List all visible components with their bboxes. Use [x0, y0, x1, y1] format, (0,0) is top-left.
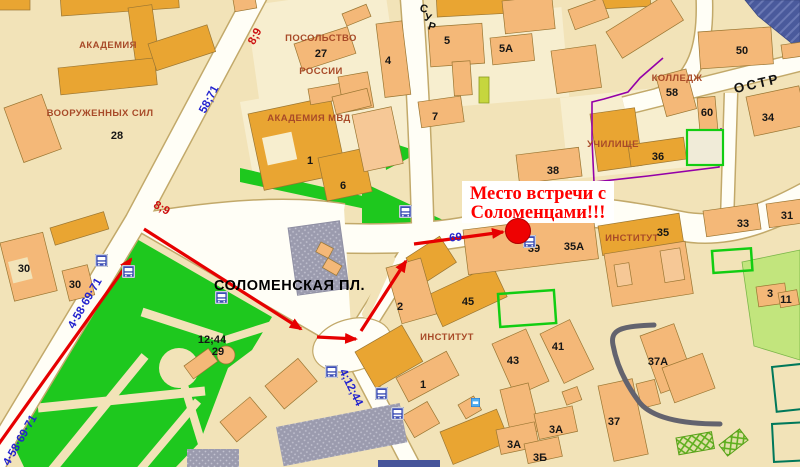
building-number: 1	[420, 379, 426, 391]
building-number: 28	[111, 130, 123, 142]
building-number: 41	[552, 341, 564, 353]
building-number: 43	[507, 355, 519, 367]
building-number: 7	[432, 111, 438, 123]
building-number: 5	[444, 35, 450, 47]
label-akademia: АКАДЕМИЯ	[79, 40, 137, 51]
label-uchilishche: УЧИЛИЩЕ	[587, 139, 639, 150]
meeting-annotation: Место встречи с Соломенцами!!!	[462, 181, 614, 223]
building-number: 38	[547, 165, 559, 177]
building-number: 30	[69, 279, 81, 291]
tram-stop-icon	[325, 365, 338, 378]
tram-stop-icon	[375, 387, 388, 400]
building-number: 50	[736, 45, 748, 57]
tram-stop-icon	[391, 407, 404, 420]
label-institut-right: ИНСТИТУТ	[605, 233, 659, 244]
annotation-line1: Место встречи с	[470, 184, 606, 204]
label-posolstvo: ПОСОЛЬСТВО	[285, 33, 357, 44]
building-number: 58	[666, 87, 678, 99]
building-number: 37	[608, 416, 620, 428]
label-rossii: РОССИИ	[299, 66, 342, 77]
label-vooruzhennyh-sil: ВООРУЖЕННЫХ СИЛ	[47, 108, 154, 119]
building-number: 36	[652, 151, 664, 163]
tram-stop-icon	[215, 291, 228, 304]
label-akademia-mvd: АКАДЕМИЯ МВД	[267, 113, 350, 124]
building-number: 33	[737, 218, 749, 230]
building-number: 4	[385, 55, 392, 67]
building-number: 3А	[507, 439, 521, 451]
building-number: 35	[657, 227, 669, 239]
kiosk-icon	[471, 398, 480, 407]
building-number: 3Б	[533, 452, 547, 464]
building-number: 3А	[549, 424, 563, 436]
building-number: 60	[701, 107, 713, 119]
building-number: 2	[397, 301, 403, 313]
meeting-point-marker	[506, 219, 531, 244]
building-number: 34	[762, 112, 775, 124]
building-number: 11	[780, 294, 792, 306]
building-number: 30	[18, 263, 30, 275]
square-name: СОЛОМЕНСКАЯ ПЛ.	[214, 278, 365, 294]
building-number: 31	[781, 210, 793, 222]
building-number: 45	[462, 296, 474, 308]
building-number: 29	[212, 346, 224, 358]
bus-stop-icon	[122, 265, 135, 278]
building-number: 5А	[499, 43, 513, 55]
tram-routes: 12;44	[198, 334, 227, 346]
map-canvas[interactable]: АКАДЕМИЯВООРУЖЕННЫХ СИЛПОСОЛЬСТВОРОССИИА…	[0, 0, 800, 467]
building-number: 3	[767, 288, 773, 300]
trolleybus-stop-icon	[95, 254, 108, 267]
label-institut-center: ИНСТИТУТ	[420, 332, 474, 343]
building-number: 1	[307, 155, 313, 167]
building-number: 35А	[564, 241, 584, 253]
annotation-line2: Соломенцами!!!	[471, 203, 606, 223]
building-number: 37А	[648, 356, 668, 368]
building-number: 27	[315, 48, 327, 60]
bus-stop-icon	[399, 205, 412, 218]
building-number: 6	[340, 180, 346, 192]
route-number: 69	[449, 231, 463, 244]
label-kolledzh: КОЛЛЕДЖ	[652, 73, 703, 84]
